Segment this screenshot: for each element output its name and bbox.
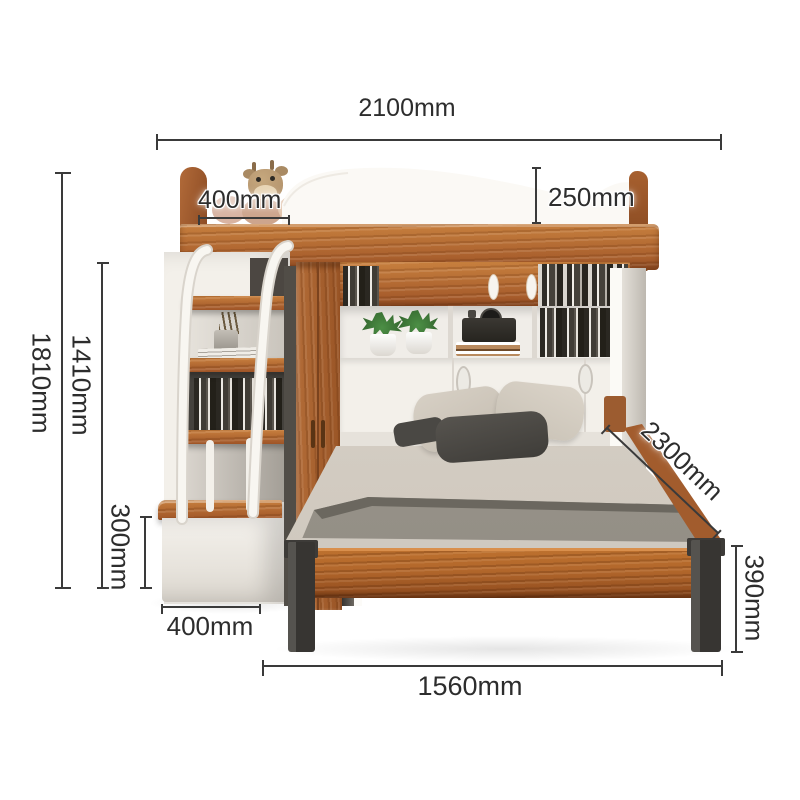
shelf-divider [532,306,537,358]
stair-step-1 [184,296,292,310]
bed-frame-front [288,548,718,598]
dimension-line [61,173,63,588]
top-cabinet-handle [526,274,537,300]
dimension-line [535,168,537,223]
stair-step-2 [184,358,292,372]
cabinet-oval-handle [578,364,593,394]
dimension-line [157,139,721,141]
wardrobe-handle [311,420,315,448]
dimension-line [735,546,737,652]
dimension-line [199,217,289,219]
shelf-divider [448,306,453,358]
dim-label-staircase-height: 1410mm [66,334,97,435]
bed-leg-left [288,542,315,652]
dim-label-total-height: 1810mm [26,332,57,433]
stair-books-row [194,378,282,430]
bed-leg-right [691,540,721,652]
dim-label-bottom-step-height: 300mm [105,504,136,591]
dim-label-guardrail-height: 250mm [548,182,635,213]
stair-step-3 [184,430,292,444]
dim-label-total-width: 2100mm [157,94,657,123]
giraffe-eye [256,177,261,182]
dimension-line [101,263,103,588]
dim-label-upper-bunk-depth: 400mm [198,186,281,215]
dimension-line [144,517,146,588]
bunk-bed-dimension-diagram: 2100mm 400mm 250mm 1810mm 1410mm 300mm 4… [0,0,800,800]
stair-bottom-step [158,500,282,520]
books-under-camera [456,342,520,356]
giraffe-eye [270,176,275,181]
stair-base-box [162,518,292,602]
stair-compartment-3 [188,444,286,502]
top-cabinet-handle [488,274,499,300]
dimension-line [263,665,722,667]
camera-body [462,318,516,342]
potted-plant-pot [370,334,396,356]
dim-label-lower-bed-length: 1560mm [263,671,677,702]
dim-label-leg-height: 390mm [739,555,770,642]
pillow-dark [435,410,550,464]
top-cabinet-books-left [343,266,379,306]
dim-label-staircase-depth: 400mm [160,611,260,642]
staircase-top-opening [250,258,288,298]
dimension-line [162,606,260,608]
wardrobe-handle [321,420,325,448]
plush-blob [312,198,338,224]
camera-knob [468,310,476,318]
floor-shadow-bed [270,636,740,662]
potted-plant-pot [406,332,432,354]
